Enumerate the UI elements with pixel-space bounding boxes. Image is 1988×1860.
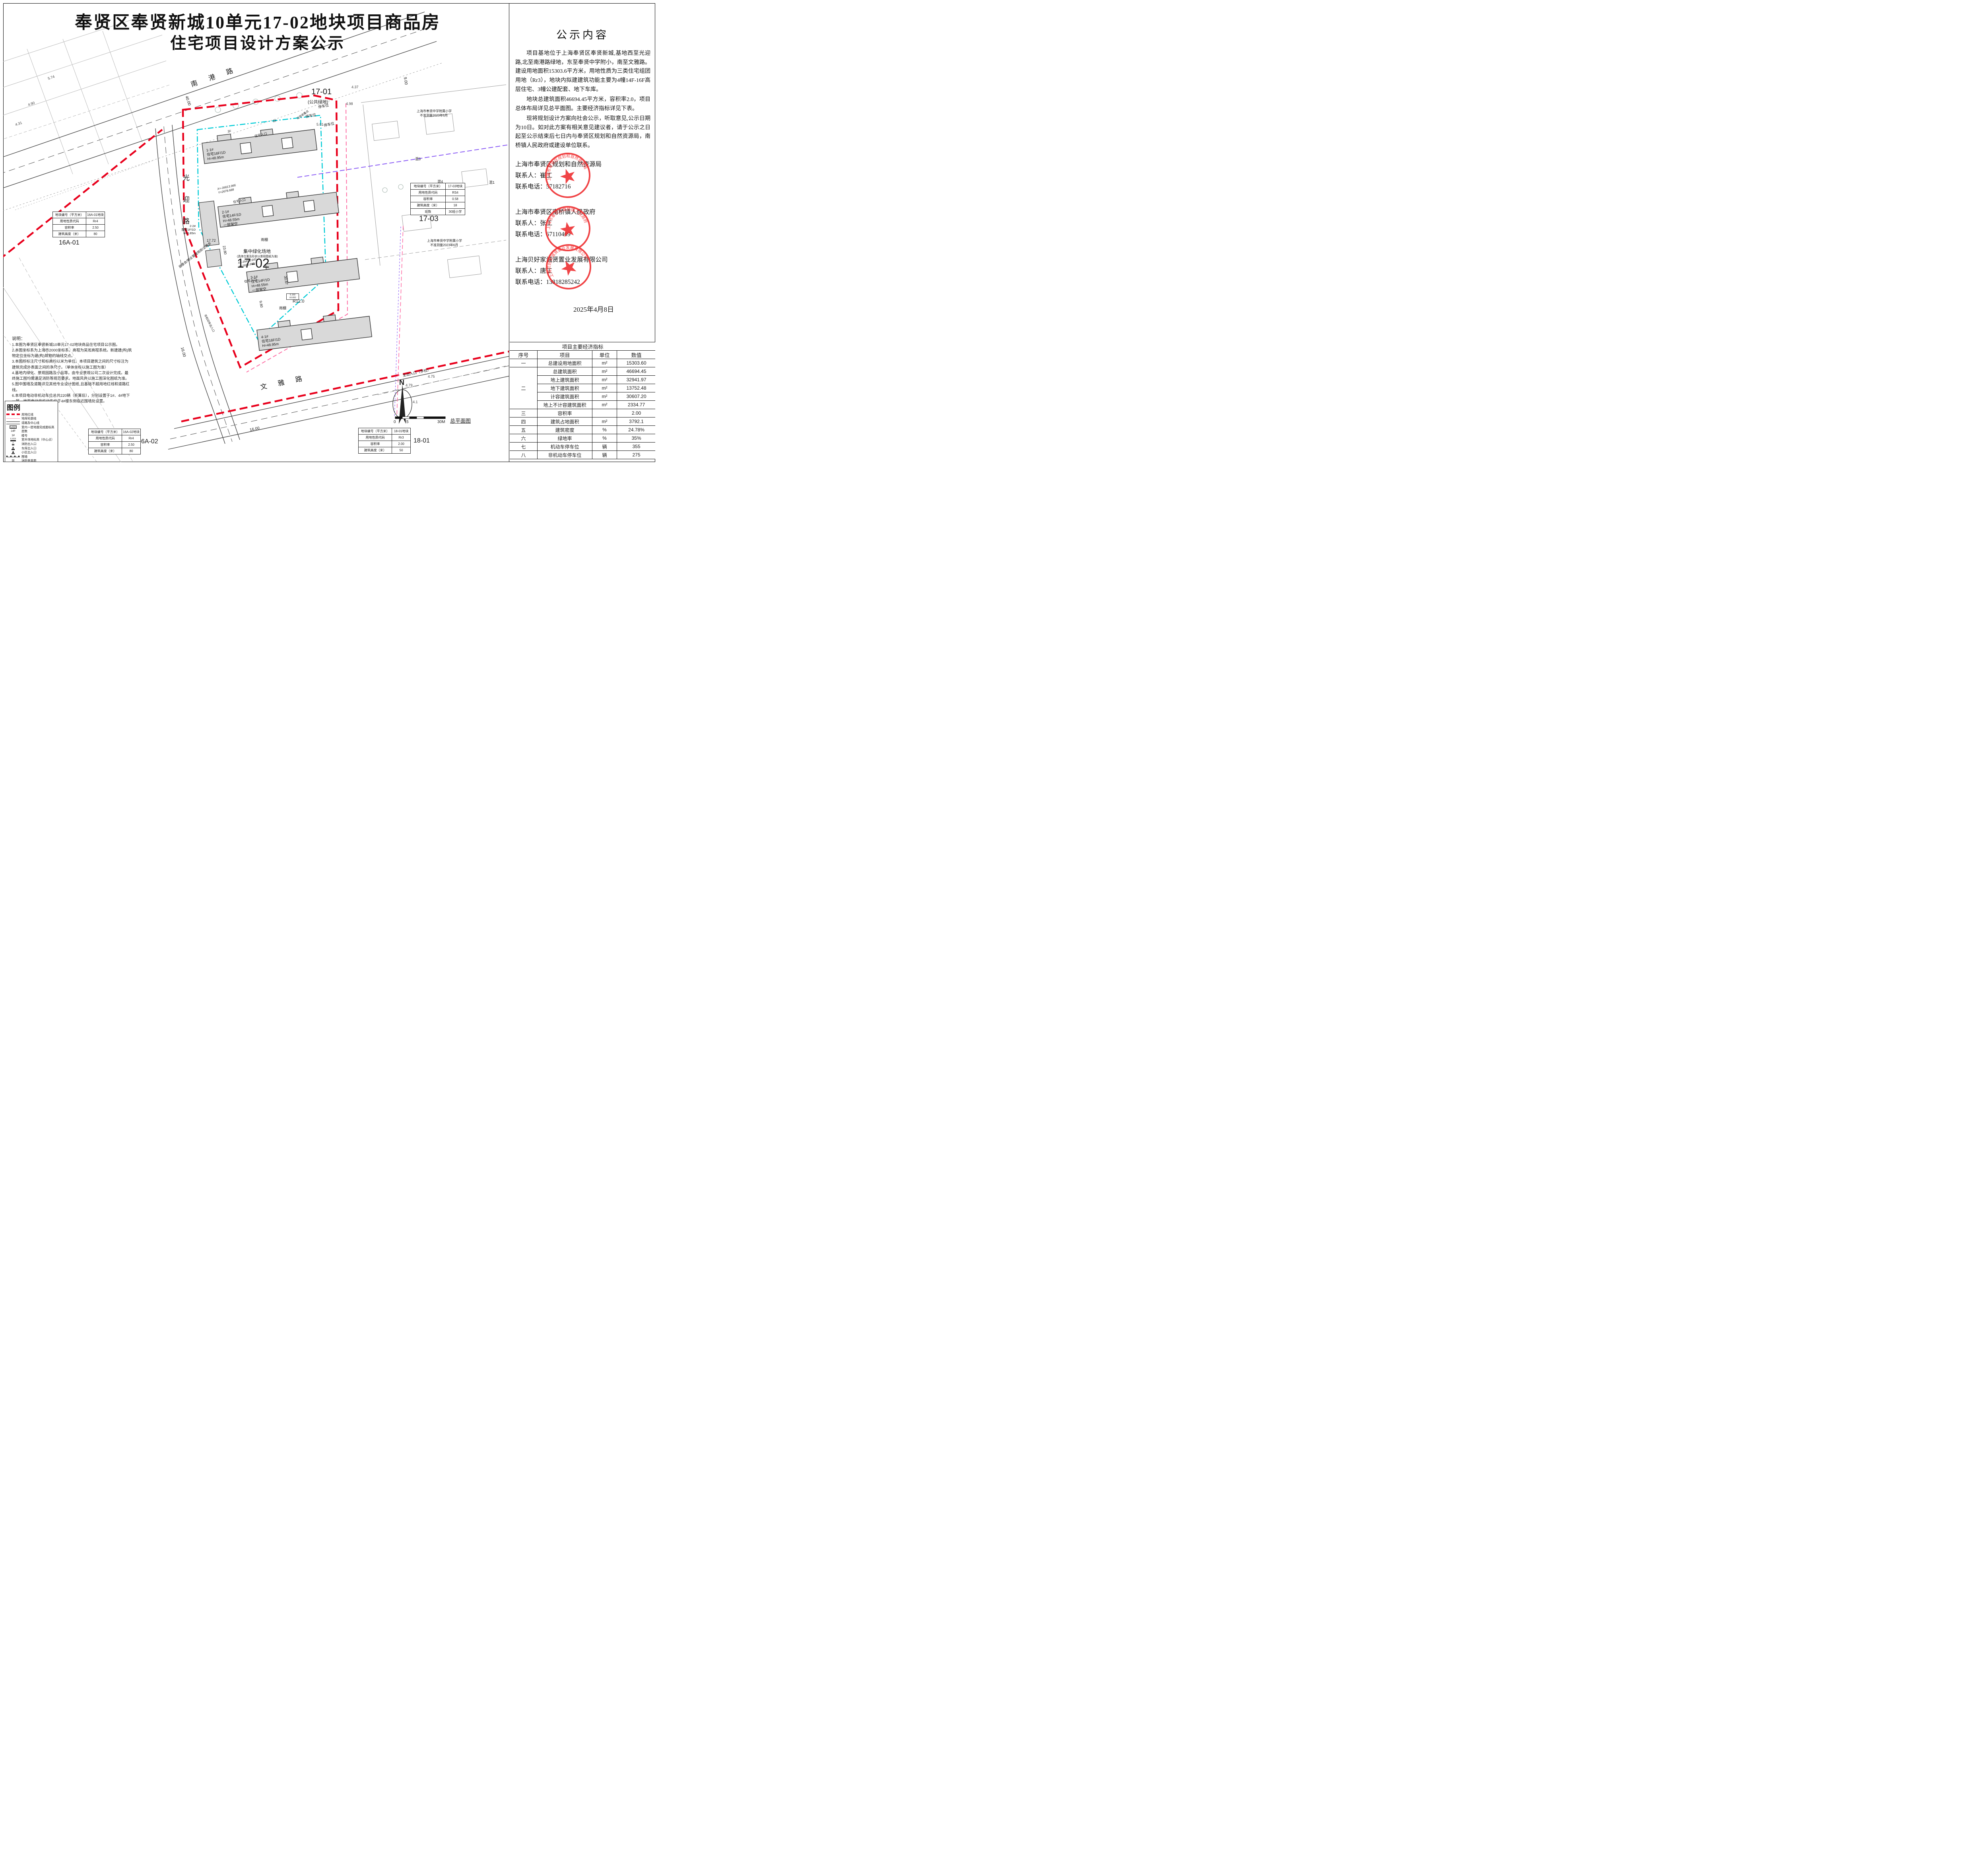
legend-label: 室外场地标高（中心点） bbox=[21, 437, 54, 442]
north-label: N bbox=[399, 379, 404, 387]
agency-name: 上海贝好家诚贤置业发展有限公司 bbox=[515, 254, 608, 266]
ind-unit: m² bbox=[592, 376, 617, 384]
notice-panel: 公示内容 项目基地位于上海奉贤区奉贤新城,基地西至光迎路,北至南港路绿地，东至奉… bbox=[510, 3, 655, 462]
plan-caption: 总平面图 bbox=[450, 417, 471, 424]
basement-line-symbol bbox=[6, 417, 20, 421]
ind-item: 机动车停车位 bbox=[538, 443, 592, 451]
plot-cell: 用地性质代码 bbox=[53, 218, 86, 225]
school-name-1: 上海市奉贤中学附属小学 bbox=[417, 109, 452, 113]
building-1-label: 1-1# 住宅16F/1D H=48.95m bbox=[206, 146, 226, 161]
agency-phone: 联系电话：57182716 bbox=[515, 181, 602, 192]
notes-block: 说明： 1.本图为奉贤区奉贤新城10单元17-02地块商品住宅项目公示图。 2.… bbox=[12, 336, 132, 404]
ind-seq: 五 bbox=[510, 426, 538, 434]
plot-table-17-03: 地块编号（平方米）17-03地块 用地性质代码RS4 容积率0.58 建筑高度（… bbox=[410, 183, 465, 215]
ind-value: 24.78% bbox=[617, 426, 656, 434]
building-no-glyph: 1# bbox=[12, 434, 15, 437]
site-elev-glyph: X.XXX bbox=[10, 438, 16, 441]
annex-type: 配套1F/1D bbox=[170, 228, 196, 231]
road-red-line-west bbox=[3, 130, 162, 260]
page-title-line2: 住宅项目设计方案公示 bbox=[19, 30, 496, 53]
col-header-value: 数值 bbox=[617, 351, 656, 359]
agency-phone: 联系电话：13818285242 bbox=[515, 277, 608, 288]
notice-date: 2025年4月8日 bbox=[573, 304, 614, 314]
floors-symbol: 14F bbox=[6, 429, 20, 433]
site-plan-map: 奉贤区奉贤新城10单元17-02地块项目商品房 住宅项目设计方案公示 南港路 光… bbox=[3, 3, 509, 462]
plot-cell: 80 bbox=[122, 448, 141, 454]
ind-unit: m² bbox=[592, 417, 617, 426]
building-4-label: 4-1# 住宅16F/1D H=48.95m bbox=[261, 333, 281, 348]
canopy-label-2: 雨棚 bbox=[279, 305, 286, 311]
plot-cell: 30班小学 bbox=[445, 209, 465, 215]
legend-label: 消防出入口 bbox=[21, 442, 37, 446]
green-space-label: 集中绿化场地 bbox=[243, 248, 271, 254]
plot-cell: Rr4 bbox=[122, 435, 141, 442]
legend-label: 围墙 bbox=[21, 454, 27, 459]
plot-cell: 地块编号（平方米） bbox=[411, 183, 446, 190]
building-2-label: 2-1# 住宅14F/1D H=48.55m 一层架空 bbox=[221, 208, 243, 227]
plot-cell: 用地性质代码 bbox=[411, 190, 446, 196]
scale-0: 0 bbox=[394, 420, 396, 424]
ind-seq: 四 bbox=[510, 417, 538, 426]
fire-exit-icon: △ bbox=[6, 442, 20, 446]
ind-value: 30607.20 bbox=[617, 392, 656, 401]
plot-cell: 0.58 bbox=[445, 196, 465, 202]
ind-item: 建筑密度 bbox=[538, 426, 592, 434]
ind-unit: % bbox=[592, 434, 617, 443]
indicators-table: 项目主要经济指标 序号 项目 单位 数值 一 总建设用地面积 m² 15303.… bbox=[510, 342, 655, 459]
spot-elev-475: 4.75 bbox=[428, 375, 435, 379]
scale-bar bbox=[395, 417, 445, 419]
note-item: 2.本图坐标系为上海市2000坐标系，高程为吴淞高程系统。新建建(构)筑物定位坐… bbox=[12, 348, 132, 359]
notes-title: 说明： bbox=[12, 336, 132, 342]
mix3-label: 混3 bbox=[415, 156, 421, 161]
legend-label: 楼号 bbox=[21, 433, 27, 438]
site-elev-symbol: X.XXX bbox=[6, 438, 20, 442]
agency-block-developer: 上海贝好家诚贤置业发展有限公司 联系人：唐工 联系电话：13818285242 bbox=[515, 254, 608, 288]
floors-glyph: 14F bbox=[11, 430, 16, 433]
ind-value: 13752.48 bbox=[617, 384, 656, 392]
agency-contact: 联系人：张工 bbox=[515, 218, 596, 229]
ind-value: 3792.1 bbox=[617, 417, 656, 426]
floor-elevation-box: 5.150 ±0.000 bbox=[286, 293, 299, 300]
panel-divider bbox=[509, 3, 509, 462]
plot-cell: 建筑高度（米） bbox=[89, 448, 122, 454]
note-item: 5.图中围墙及道路详见其他专业设计图纸,且基础不超用地红线和道路红线。 bbox=[12, 382, 132, 393]
legend-item-floors: 14F 层数 bbox=[5, 429, 58, 433]
col-header-seq: 序号 bbox=[510, 351, 538, 359]
notice-heading: 公示内容 bbox=[510, 26, 655, 42]
legend-label: 道路及中心线 bbox=[21, 421, 39, 425]
legend-label: 车库出入口 bbox=[21, 446, 37, 450]
plot-table-16a-02: 地块编号（平方米）16A-02地块 用地性质代码Rr4 容积率2.50 建筑高度… bbox=[88, 429, 141, 454]
ind-seq: 六 bbox=[510, 434, 538, 443]
legend-label: 室内一层地面完成面标高 bbox=[21, 425, 54, 429]
road-wenya-lines bbox=[168, 356, 509, 449]
spot-elev-498: 4.98 bbox=[346, 102, 353, 106]
agency-block-town: 上海市奉贤区南桥镇人民政府 联系人：张工 联系电话：67110409 bbox=[515, 207, 596, 240]
plot-cell: 建筑高度（米） bbox=[411, 202, 446, 209]
building-no-symbol: 1# bbox=[6, 433, 20, 437]
area-label-18-01: 18-01 bbox=[414, 437, 430, 445]
ind-unit: % bbox=[592, 426, 617, 434]
area-label-16a-01: 16A-01 bbox=[59, 239, 80, 247]
legend-item-road: 道路及中心线 bbox=[5, 421, 58, 425]
plot-cell: 16A-01地块 bbox=[86, 212, 105, 218]
plot-cell: 地块编号（平方米） bbox=[89, 429, 122, 435]
plot-cell: 16A-02地块 bbox=[122, 429, 141, 435]
school-name-2: 上海市奉贤中学附属小学 bbox=[427, 239, 462, 243]
legend-label: 层数 bbox=[21, 429, 27, 433]
ind-item: 计容建筑面积 bbox=[538, 392, 592, 401]
legend-item-redline: 用地红线 bbox=[5, 412, 58, 417]
spot-elev-501: 5.01 bbox=[316, 122, 324, 126]
agency-contact: 联系人：崔工 bbox=[515, 170, 602, 181]
plot-cell: RS4 bbox=[445, 190, 465, 196]
ind-seq: 一 bbox=[510, 359, 538, 367]
redline-symbol bbox=[6, 412, 20, 416]
school-date-2: 不准测量2023年6月 bbox=[430, 243, 458, 247]
plot-cell: 容积率 bbox=[411, 196, 446, 202]
ind-unit: 辆 bbox=[592, 451, 617, 459]
floor-elev-symbol: X.XXX bbox=[6, 425, 20, 429]
agency-contact: 联系人：唐工 bbox=[515, 266, 608, 277]
ind-value: 275 bbox=[617, 451, 656, 459]
plot-cell: 班数 bbox=[411, 209, 446, 215]
plot-cell: 建筑高度（米） bbox=[359, 447, 392, 454]
legend-title: 图例 bbox=[5, 401, 58, 412]
plot-table-18-01: 地块编号（平方米）18-01地块 用地性质代码Rr3 容积率2.00 建筑高度（… bbox=[358, 428, 411, 454]
public-notice-page: 奉贤区奉贤新城10单元17-02地块项目商品房 住宅项目设计方案公示 南港路 光… bbox=[0, 0, 658, 465]
plot-cell: 18-01地块 bbox=[392, 428, 411, 435]
ind-seq: 二 bbox=[510, 367, 538, 409]
plot-cell: Rr4 bbox=[86, 218, 105, 225]
plot-cell: 2.50 bbox=[122, 442, 141, 448]
canopy-label-1: 雨棚 bbox=[261, 237, 268, 242]
page-title-line1: 奉贤区奉贤新城10单元17-02地块项目商品房 bbox=[19, 8, 496, 33]
ind-item: 非机动车停车位 bbox=[538, 451, 592, 459]
spot-elev-41: 4.1 bbox=[413, 400, 418, 404]
ind-unit: m² bbox=[592, 401, 617, 409]
legend-item-floor-elev: X.XXX 室内一层地面完成面标高 bbox=[5, 425, 58, 429]
note-item: 1.本图为奉贤区奉贤新城10单元17-02地块商品住宅项目公示图。 bbox=[12, 342, 132, 348]
scale-5: 5 bbox=[406, 420, 409, 424]
area-label-17-03: 17-03 bbox=[419, 215, 439, 223]
spot-elev-437: 4.37 bbox=[351, 85, 359, 89]
ind-unit bbox=[592, 409, 617, 417]
plot-cell: 地块编号（平方米） bbox=[53, 212, 86, 218]
agency-phone: 联系电话：67110409 bbox=[515, 229, 596, 240]
green-space-sub: (具体位置及形状以景观图纸为准) bbox=[237, 254, 278, 258]
annex-height: H=6.85m bbox=[170, 231, 196, 235]
ind-unit: m² bbox=[592, 384, 617, 392]
legend-label: 消防登高面 bbox=[21, 458, 37, 462]
plot-cell: 建筑高度（米） bbox=[53, 231, 86, 237]
note-item: 4.基地内绿化、景观园路及小品等，由专业景观公司二次设计完成。最终施工图均需满足… bbox=[12, 371, 132, 382]
ind-unit: m² bbox=[592, 392, 617, 401]
legend-label: 小区出入口 bbox=[21, 450, 37, 454]
area-label-17-01: 17-01 bbox=[311, 87, 332, 97]
plot-table-16a-01: 地块编号（平方米）16A-01地块 用地性质代码Rr4 容积率2.50 建筑高度… bbox=[52, 212, 105, 237]
legend-item-wall: 围墙 bbox=[5, 454, 58, 459]
ind-item: 总建筑面积 bbox=[538, 367, 592, 376]
plot-cell: 17-03地块 bbox=[445, 183, 465, 190]
ind-value: 32941.97 bbox=[617, 376, 656, 384]
ind-value: 15303.60 bbox=[617, 359, 656, 367]
legend-item-community-exit: ▲ 小区出入口 bbox=[5, 450, 58, 454]
col-header-unit: 单位 bbox=[592, 351, 617, 359]
plot-cell: 用地性质代码 bbox=[359, 435, 392, 441]
annex-no: 2-2# bbox=[170, 224, 196, 228]
notice-paragraph-3: 现将规划设计方案向社会公示，听取意见,公示日期为10日。如对此方案有相关意见建议… bbox=[515, 115, 650, 151]
community-exit-icon: ▲ bbox=[6, 450, 20, 454]
annex-label: 2-2# 配套1F/1D H=6.85m bbox=[170, 224, 196, 235]
plot-cell: 容积率 bbox=[359, 441, 392, 447]
mix1-label: 混1 bbox=[489, 180, 495, 185]
floor-elevation-zero: ±0.000 bbox=[287, 297, 299, 299]
ind-value: 2334.77 bbox=[617, 401, 656, 409]
notice-paragraph-1: 项目基地位于上海奉贤区奉贤新城,基地西至光迎路,北至南港路绿地，东至奉贤中学附小… bbox=[515, 49, 650, 94]
ind-unit: m² bbox=[592, 359, 617, 367]
floor-1f-b: 1F bbox=[273, 119, 276, 123]
legend-item-bldno: 1# 楼号 bbox=[5, 433, 58, 438]
ind-seq: 七 bbox=[510, 443, 538, 451]
spot-elev-479: 4.79 bbox=[406, 383, 413, 387]
agency-name: 上海市奉贤区南桥镇人民政府 bbox=[515, 207, 596, 218]
ind-seq: 三 bbox=[510, 409, 538, 417]
fire-face-symbol: ⊠ bbox=[6, 459, 20, 462]
ind-item: 容积率 bbox=[538, 409, 592, 417]
ind-item: 地下建筑面积 bbox=[538, 384, 592, 392]
plot-cell: 容积率 bbox=[53, 225, 86, 231]
note-item: 3.本图所标注尺寸和标高均以米为单位。本项目建筑之间的尺寸标注为建筑完成外表面之… bbox=[12, 359, 132, 371]
building-3-label: 3-1# 住宅14F/1D H=48.55m 一层架空 bbox=[250, 273, 271, 293]
ind-item: 地上不计容建筑面积 bbox=[538, 401, 592, 409]
plot-cell: Rr3 bbox=[392, 435, 411, 441]
school-date-1: 不准测量2023年6月 bbox=[420, 113, 448, 118]
legend-label: 地库轮廓线 bbox=[21, 416, 37, 421]
ind-item: 总建设用地面积 bbox=[538, 359, 592, 367]
wall-symbol bbox=[6, 454, 20, 458]
notice-paragraph-2: 地块总建筑面积46694.45平方米，容积率2.0，项目总体布局详见总平面图。主… bbox=[515, 95, 650, 113]
plot-cell: 18 bbox=[445, 202, 465, 209]
agency-block-planning: 上海市奉贤区规划和自然资源局 联系人：崔工 联系电话：57182716 bbox=[515, 159, 602, 192]
indicators-title: 项目主要经济指标 bbox=[510, 342, 655, 351]
legend: 图例 用地红线 地库轮廓线 道路及中心线 X.XXX 室内一层地面完成面标高 1… bbox=[5, 401, 58, 462]
ind-value: 46694.45 bbox=[617, 367, 656, 376]
ind-unit: m² bbox=[592, 367, 617, 376]
ind-item: 绿地率 bbox=[538, 434, 592, 443]
ind-seq: 八 bbox=[510, 451, 538, 459]
floor-elevation-value: 5.150 bbox=[287, 294, 299, 297]
plot-cell: 地块编号（平方米） bbox=[359, 428, 392, 435]
floor-elev-glyph: X.XXX bbox=[10, 425, 17, 429]
col-header-item: 项目 bbox=[538, 351, 592, 359]
plot-cell: 50 bbox=[392, 447, 411, 454]
ind-item: 建筑占地面积 bbox=[538, 417, 592, 426]
scale-30m: 30M bbox=[437, 420, 445, 424]
ind-unit: 辆 bbox=[592, 443, 617, 451]
plot-cell: 80 bbox=[86, 231, 105, 237]
plot-cell: 容积率 bbox=[89, 442, 122, 448]
road-line-symbol bbox=[6, 421, 20, 425]
ind-item: 地上建筑面积 bbox=[538, 376, 592, 384]
agency-name: 上海市奉贤区规划和自然资源局 bbox=[515, 159, 602, 170]
plot-cell: 2.50 bbox=[86, 225, 105, 231]
legend-label: 用地红线 bbox=[21, 412, 33, 417]
legend-item-fire-face: ⊠ 消防登高面 bbox=[5, 459, 58, 462]
floor-1f-a: 1F bbox=[227, 130, 231, 133]
plot-cell: 2.00 bbox=[392, 441, 411, 447]
plot-cell: 用地性质代码 bbox=[89, 435, 122, 442]
legend-item-basement: 地库轮廓线 bbox=[5, 417, 58, 421]
ind-value: 35% bbox=[617, 434, 656, 443]
ind-value: 2.00 bbox=[617, 409, 656, 417]
ind-value: 355 bbox=[617, 443, 656, 451]
